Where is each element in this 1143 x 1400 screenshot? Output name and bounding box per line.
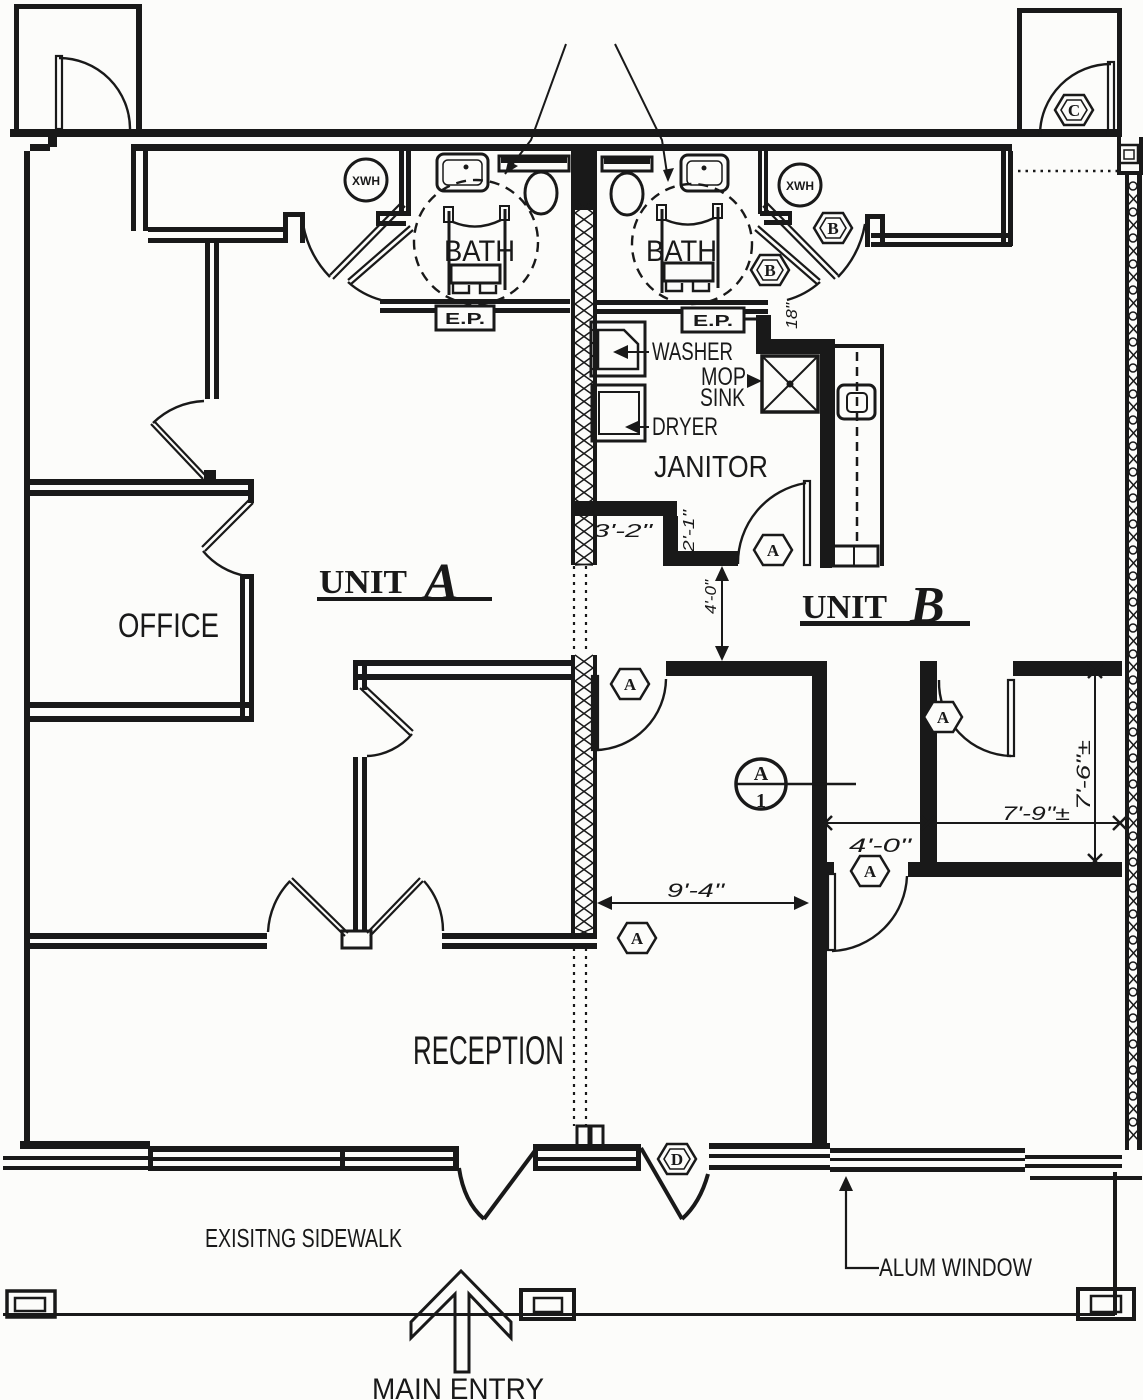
svg-text:MAIN ENTRY: MAIN ENTRY bbox=[372, 1373, 544, 1400]
svg-text:A: A bbox=[624, 675, 637, 694]
svg-text:4'-0": 4'-0" bbox=[849, 836, 913, 857]
svg-text:3'-2": 3'-2" bbox=[593, 521, 655, 541]
svg-text:A: A bbox=[864, 862, 877, 881]
svg-text:DRYER: DRYER bbox=[652, 413, 718, 441]
svg-text:9'-4": 9'-4" bbox=[667, 881, 726, 902]
svg-text:7'-6"±: 7'-6"± bbox=[1074, 740, 1095, 810]
svg-text:A: A bbox=[631, 929, 644, 948]
svg-text:UNIT: UNIT bbox=[319, 564, 407, 601]
svg-text:RECEPTION: RECEPTION bbox=[413, 1029, 564, 1073]
svg-text:7'-9"±: 7'-9"± bbox=[1002, 804, 1070, 825]
svg-text:A: A bbox=[937, 708, 950, 727]
svg-text:1: 1 bbox=[756, 790, 766, 812]
svg-text:4'-0": 4'-0" bbox=[703, 579, 720, 614]
svg-text:ALUM WINDOW: ALUM WINDOW bbox=[879, 1254, 1032, 1282]
svg-text:BATH: BATH bbox=[646, 235, 717, 268]
svg-text:XWH: XWH bbox=[352, 174, 380, 188]
svg-text:SINK: SINK bbox=[700, 384, 745, 412]
svg-text:E.P.: E.P. bbox=[693, 313, 733, 330]
svg-text:EXISITNG SIDEWALK: EXISITNG SIDEWALK bbox=[205, 1223, 402, 1253]
svg-text:BATH: BATH bbox=[444, 235, 515, 268]
svg-text:A: A bbox=[421, 554, 459, 611]
svg-text:18": 18" bbox=[784, 302, 801, 329]
svg-text:WASHER: WASHER bbox=[652, 338, 733, 366]
svg-text:B: B bbox=[764, 261, 775, 280]
svg-text:2'-1": 2'-1" bbox=[681, 508, 698, 553]
svg-text:XWH: XWH bbox=[786, 179, 814, 193]
svg-text:B: B bbox=[827, 219, 838, 238]
svg-text:C: C bbox=[1068, 101, 1080, 120]
svg-text:A: A bbox=[767, 541, 780, 560]
svg-text:A: A bbox=[754, 763, 769, 785]
svg-text:OFFICE: OFFICE bbox=[118, 607, 219, 645]
svg-text:E.P.: E.P. bbox=[445, 311, 485, 328]
svg-text:UNIT: UNIT bbox=[802, 589, 887, 626]
svg-text:D: D bbox=[671, 1150, 683, 1169]
svg-text:JANITOR: JANITOR bbox=[654, 449, 768, 484]
